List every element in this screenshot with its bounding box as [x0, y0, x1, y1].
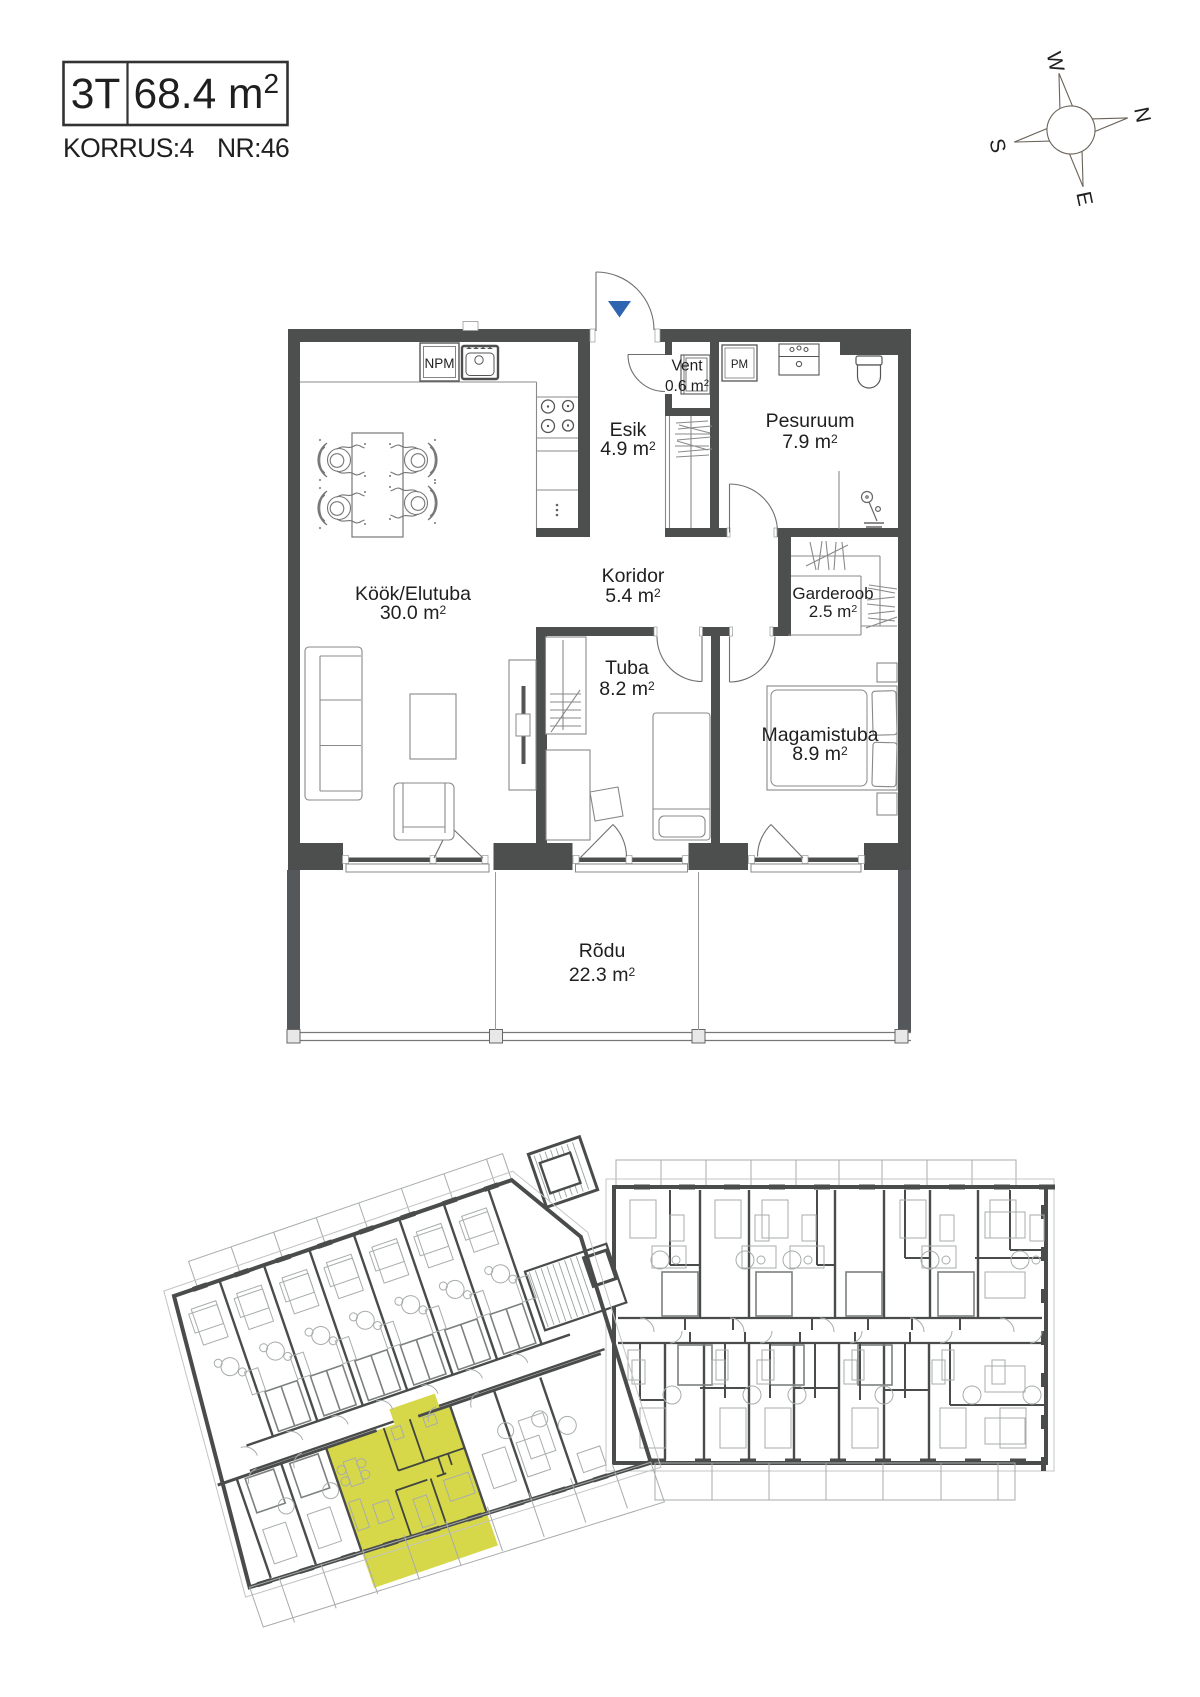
svg-text:5.4 m2: 5.4 m2 [605, 585, 661, 607]
svg-text:2.5 m2: 2.5 m2 [809, 602, 858, 621]
svg-text:NPM: NPM [425, 356, 455, 371]
svg-text:8.2 m2: 8.2 m2 [599, 678, 655, 700]
svg-text:NR:46: NR:46 [217, 133, 289, 163]
svg-text:Tuba: Tuba [605, 657, 649, 679]
svg-text:0.6 m2: 0.6 m2 [665, 378, 709, 395]
svg-text:30.0 m2: 30.0 m2 [380, 602, 447, 624]
svg-text:PM: PM [731, 359, 748, 371]
svg-text:Garderoob: Garderoob [792, 584, 873, 603]
svg-text:Vent: Vent [671, 358, 703, 375]
svg-text:Rõdu: Rõdu [579, 940, 626, 962]
svg-text:KORRUS:4: KORRUS:4 [63, 133, 194, 163]
svg-text:68.4 m2: 68.4 m2 [134, 68, 280, 118]
svg-text:7.9 m2: 7.9 m2 [782, 431, 838, 453]
svg-text:Koridor: Koridor [602, 565, 665, 587]
svg-text:3T: 3T [71, 71, 121, 118]
svg-text:8.9 m2: 8.9 m2 [792, 743, 848, 765]
svg-text:4.9 m2: 4.9 m2 [600, 438, 656, 460]
svg-text:Pesuruum: Pesuruum [766, 410, 855, 432]
svg-text:22.3 m2: 22.3 m2 [569, 964, 636, 986]
